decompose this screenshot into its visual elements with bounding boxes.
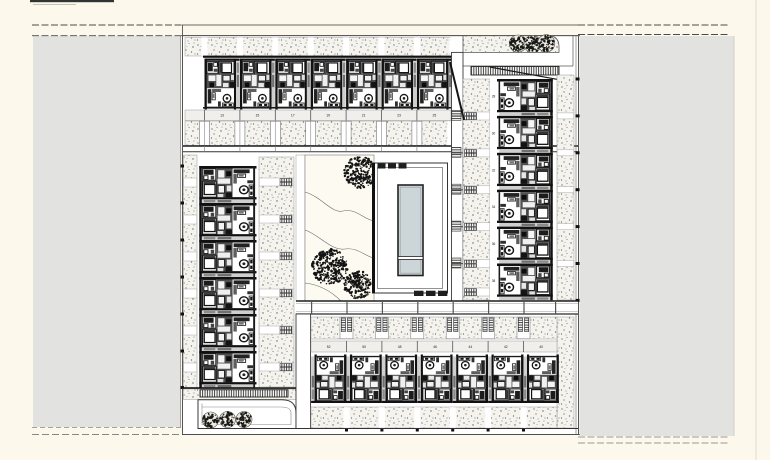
svg-text:32: 32 (492, 168, 496, 172)
svg-text:21: 21 (362, 114, 366, 118)
svg-text:25: 25 (433, 114, 437, 118)
svg-text:46: 46 (433, 345, 437, 349)
svg-text:23: 23 (397, 114, 401, 118)
svg-text:15: 15 (256, 114, 260, 118)
svg-text:28: 28 (492, 95, 496, 99)
svg-text:50: 50 (362, 345, 366, 349)
svg-text:52: 52 (327, 345, 331, 349)
svg-text:34: 34 (492, 205, 496, 209)
svg-text:36: 36 (492, 242, 496, 246)
svg-text:19: 19 (326, 114, 330, 118)
svg-text:13: 13 (220, 114, 224, 118)
svg-text:17: 17 (291, 114, 295, 118)
svg-text:38: 38 (492, 279, 496, 283)
svg-text:48: 48 (398, 345, 402, 349)
svg-text:42: 42 (504, 345, 508, 349)
svg-text:30: 30 (492, 131, 496, 135)
svg-text:40: 40 (539, 345, 543, 349)
svg-text:44: 44 (469, 345, 473, 349)
